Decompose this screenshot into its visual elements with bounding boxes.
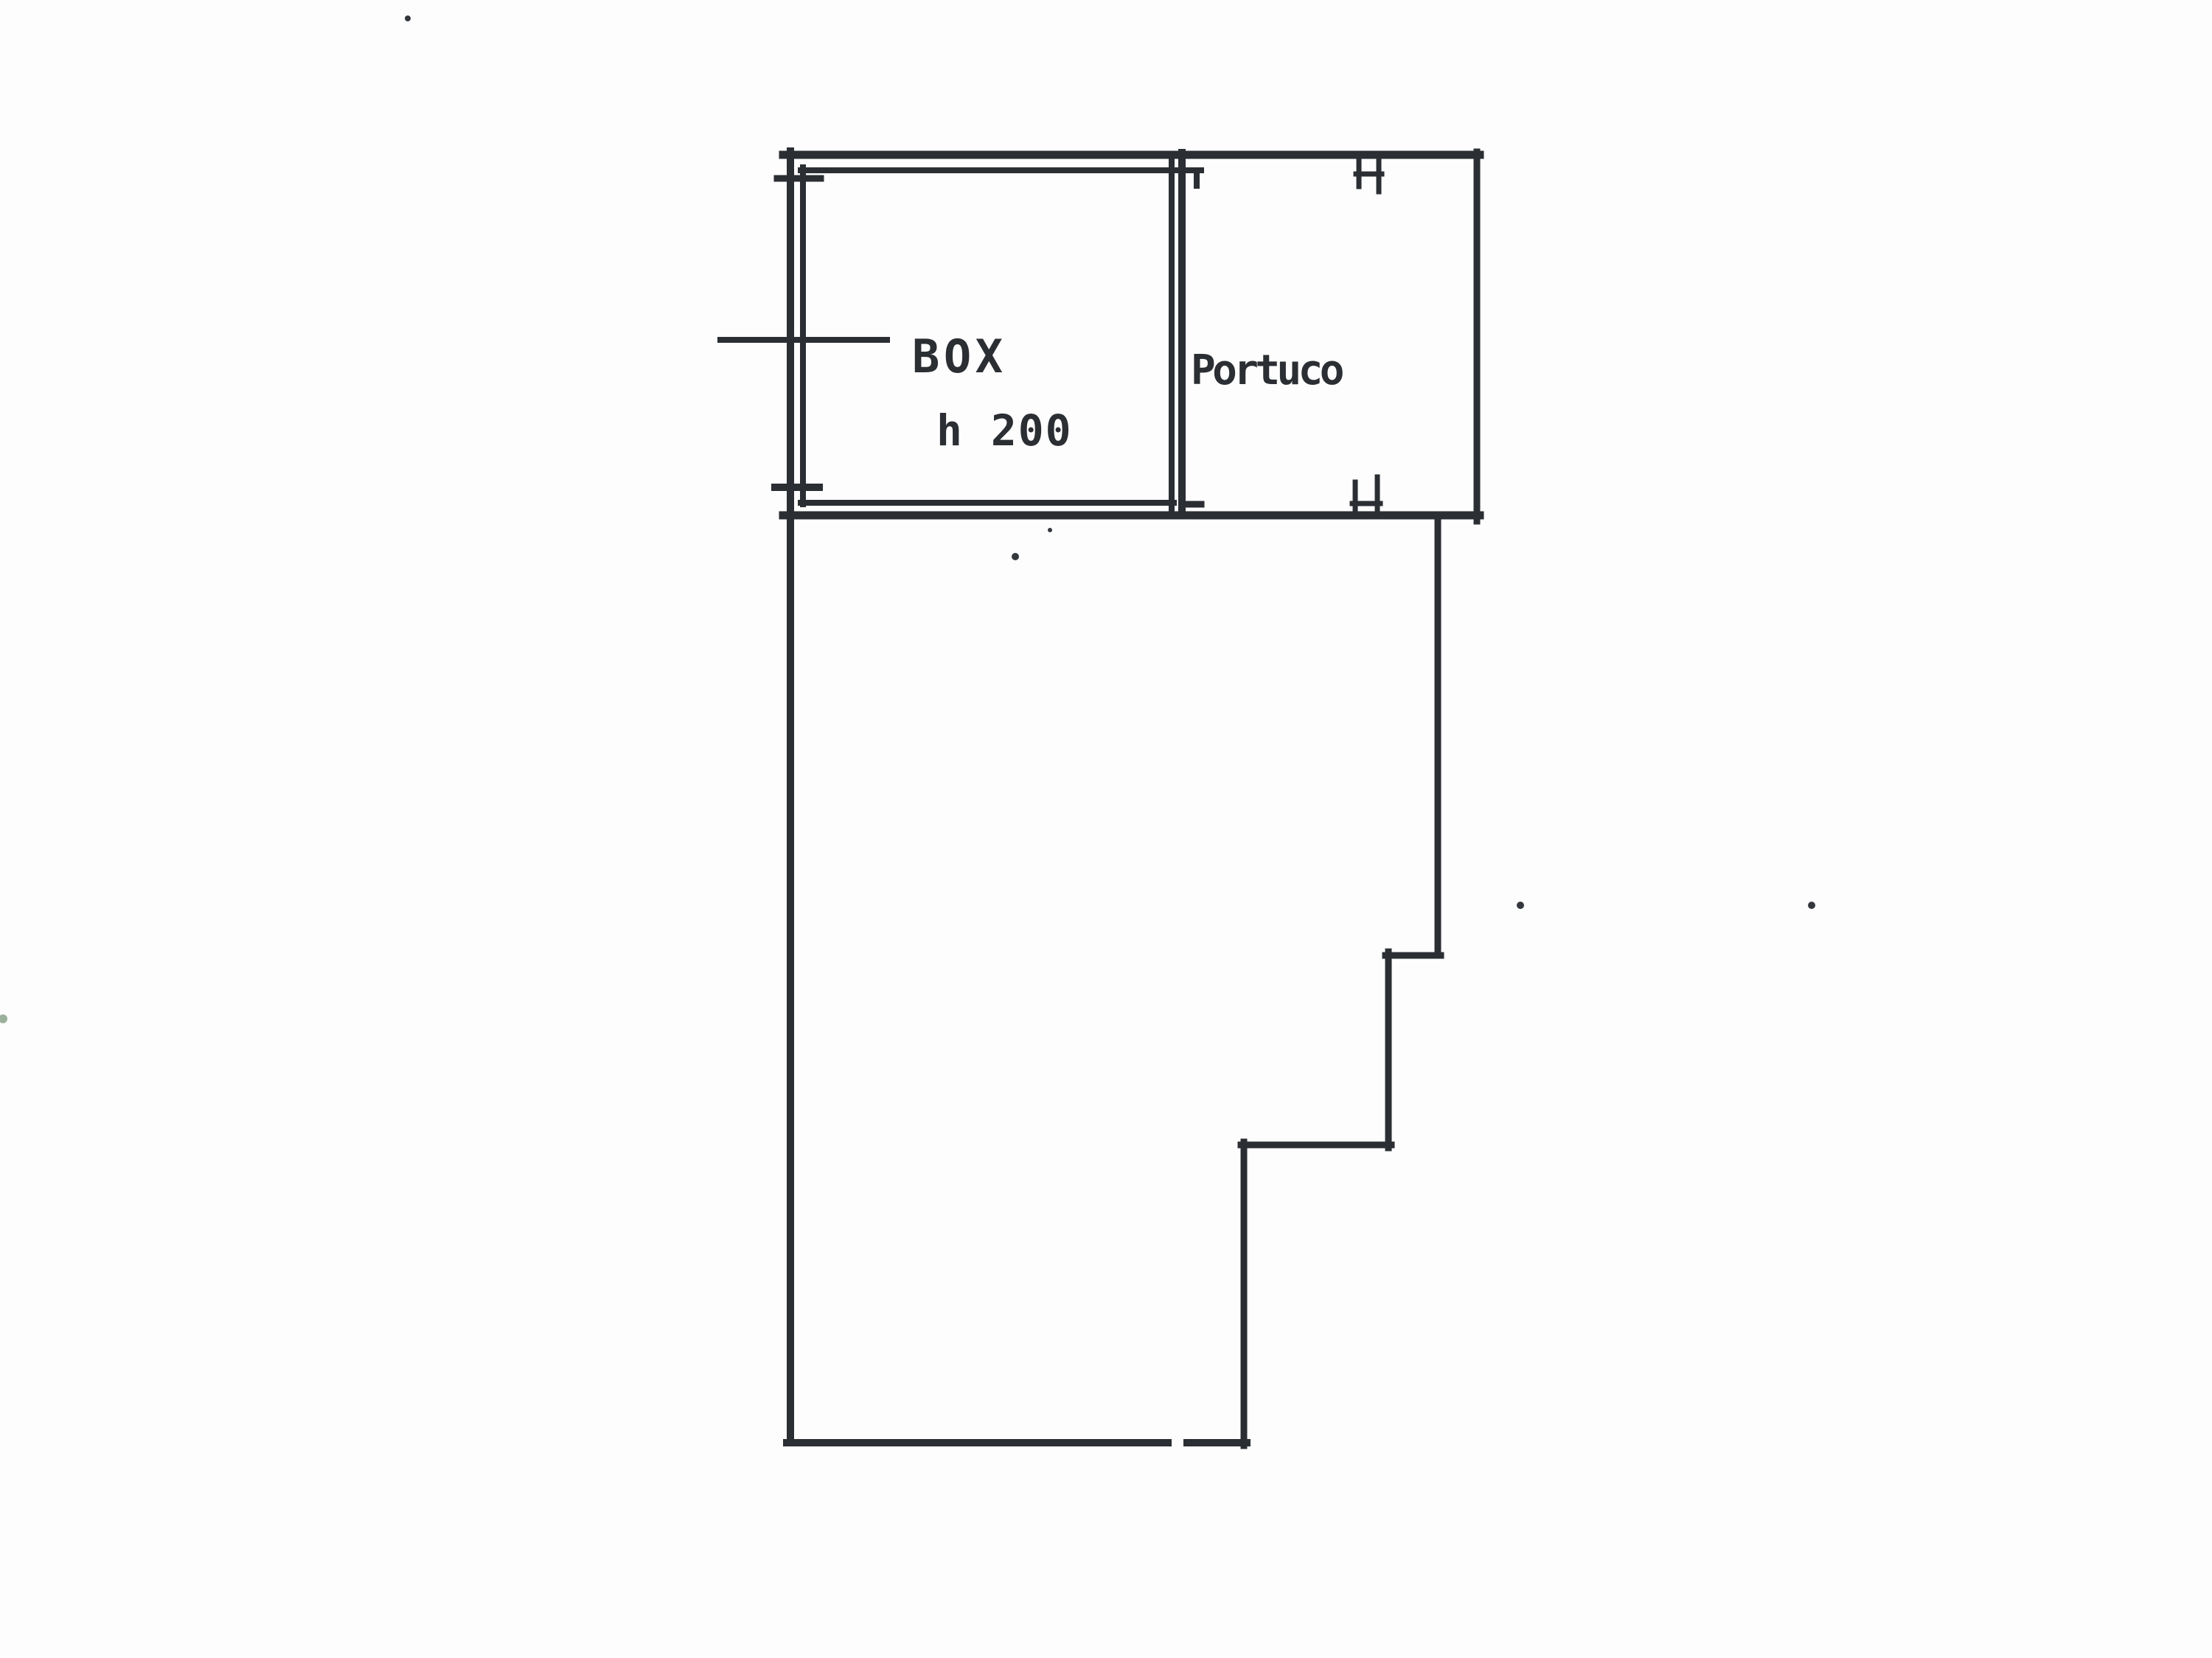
floorplan-drawing: BOX h 200 Portuco [0,0,2212,1658]
scan-speck-1 [1012,553,1019,560]
walls-layer [720,151,1480,1446]
scan-speck-2 [1048,528,1052,532]
scan-speck-0 [405,15,411,21]
labels-layer: BOX h 200 Portuco [912,330,1343,456]
box-height-note: h 200 [936,405,1073,456]
scanned-floorplan-page: BOX h 200 Portuco [0,0,2212,1658]
portico-room-label: Portuco [1191,346,1343,394]
box-room-label: BOX [912,330,1006,383]
scan-speck-5 [0,1014,7,1023]
scan-speck-4 [1808,902,1815,909]
scan-speck-3 [1517,902,1524,909]
